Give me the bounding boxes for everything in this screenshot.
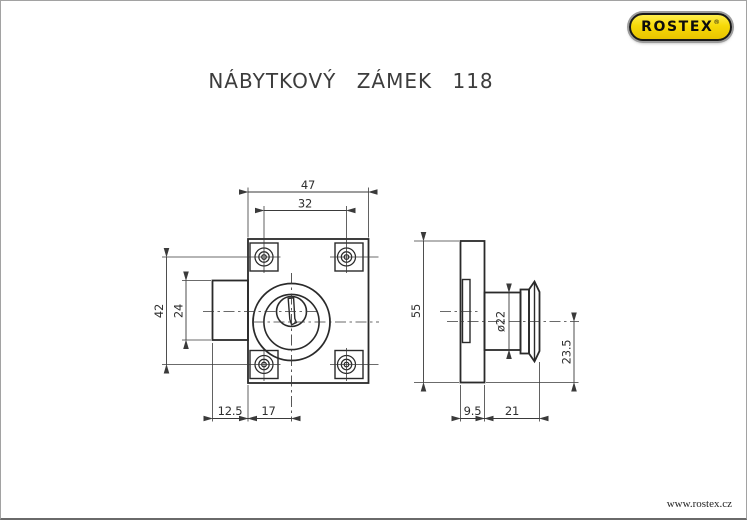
dim-23-5-label: 23.5 [560,340,574,365]
dim-9-5-label: 9.5 [464,404,482,418]
technical-drawing: 47 32 42 24 12.5 17 [1,1,747,520]
plate-slot [463,280,471,343]
front-view: 47 32 42 24 12.5 17 [152,178,379,422]
dim-21-label: 21 [505,404,519,418]
drawing-sheet: NÁBYTKOVÝ ZÁMEK 118 ROSTEX ® [0,0,747,520]
dim-32-label: 32 [298,197,312,211]
dim-42-label: 42 [152,304,166,318]
dim-55-label: 55 [409,304,423,318]
dim-17-label: 17 [261,404,275,418]
lock-case-outline [213,281,249,341]
dim-diameter-22-label: ø22 [494,311,508,332]
dim-12-5-label: 12.5 [218,404,243,418]
dim-47-label: 47 [301,178,315,192]
dim-24-label: 24 [172,304,186,318]
side-view: 55 ø22 23.5 9.5 21 [409,241,579,422]
website-url: www.rostex.cz [667,498,732,510]
